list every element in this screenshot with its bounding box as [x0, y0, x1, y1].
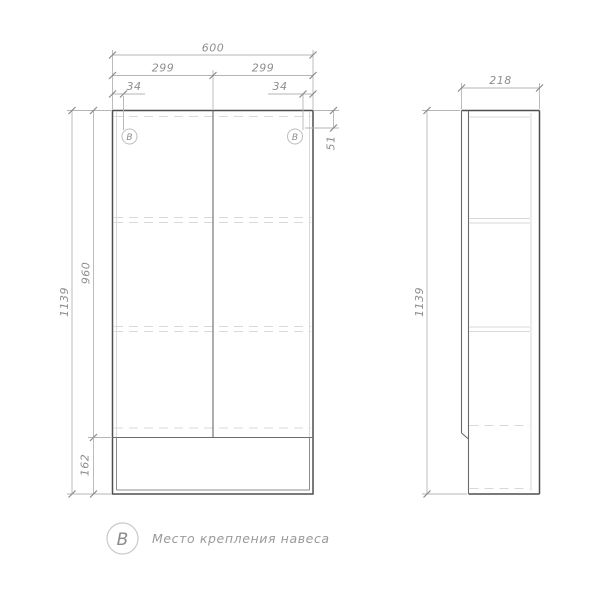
right-fastener-mark-label: В — [292, 133, 298, 143]
dim-side-total-height: 1139 — [413, 287, 426, 317]
dim-front-total-height: 1139 — [58, 287, 71, 317]
legend-label: Место крепления навеса — [152, 531, 330, 546]
front-view: В В — [113, 94, 314, 494]
dim-depth: 218 — [489, 74, 512, 87]
side-view-dimensions: 218 1139 — [413, 74, 543, 498]
left-fastener-mark-label: В — [126, 133, 132, 143]
dim-fastener-drop: 51 — [325, 136, 338, 151]
dim-left-door-width: 299 — [152, 62, 175, 75]
dim-left-fastener-offset: 34 — [127, 80, 142, 93]
dim-total-width: 600 — [202, 42, 225, 55]
legend-symbol: В — [117, 530, 129, 550]
technical-drawing: В В 600 299 299 34 34 51 — [0, 0, 600, 600]
legend: В Место крепления навеса — [107, 523, 330, 554]
dim-door-height: 960 — [80, 262, 93, 285]
dim-right-door-width: 299 — [252, 62, 275, 75]
dim-right-fastener-offset: 34 — [273, 80, 288, 93]
dim-niche-height: 162 — [79, 454, 92, 477]
side-view — [462, 111, 540, 495]
drawing-svg: В В 600 299 299 34 34 51 — [0, 0, 600, 600]
side-door-bottom-corner — [462, 433, 469, 439]
